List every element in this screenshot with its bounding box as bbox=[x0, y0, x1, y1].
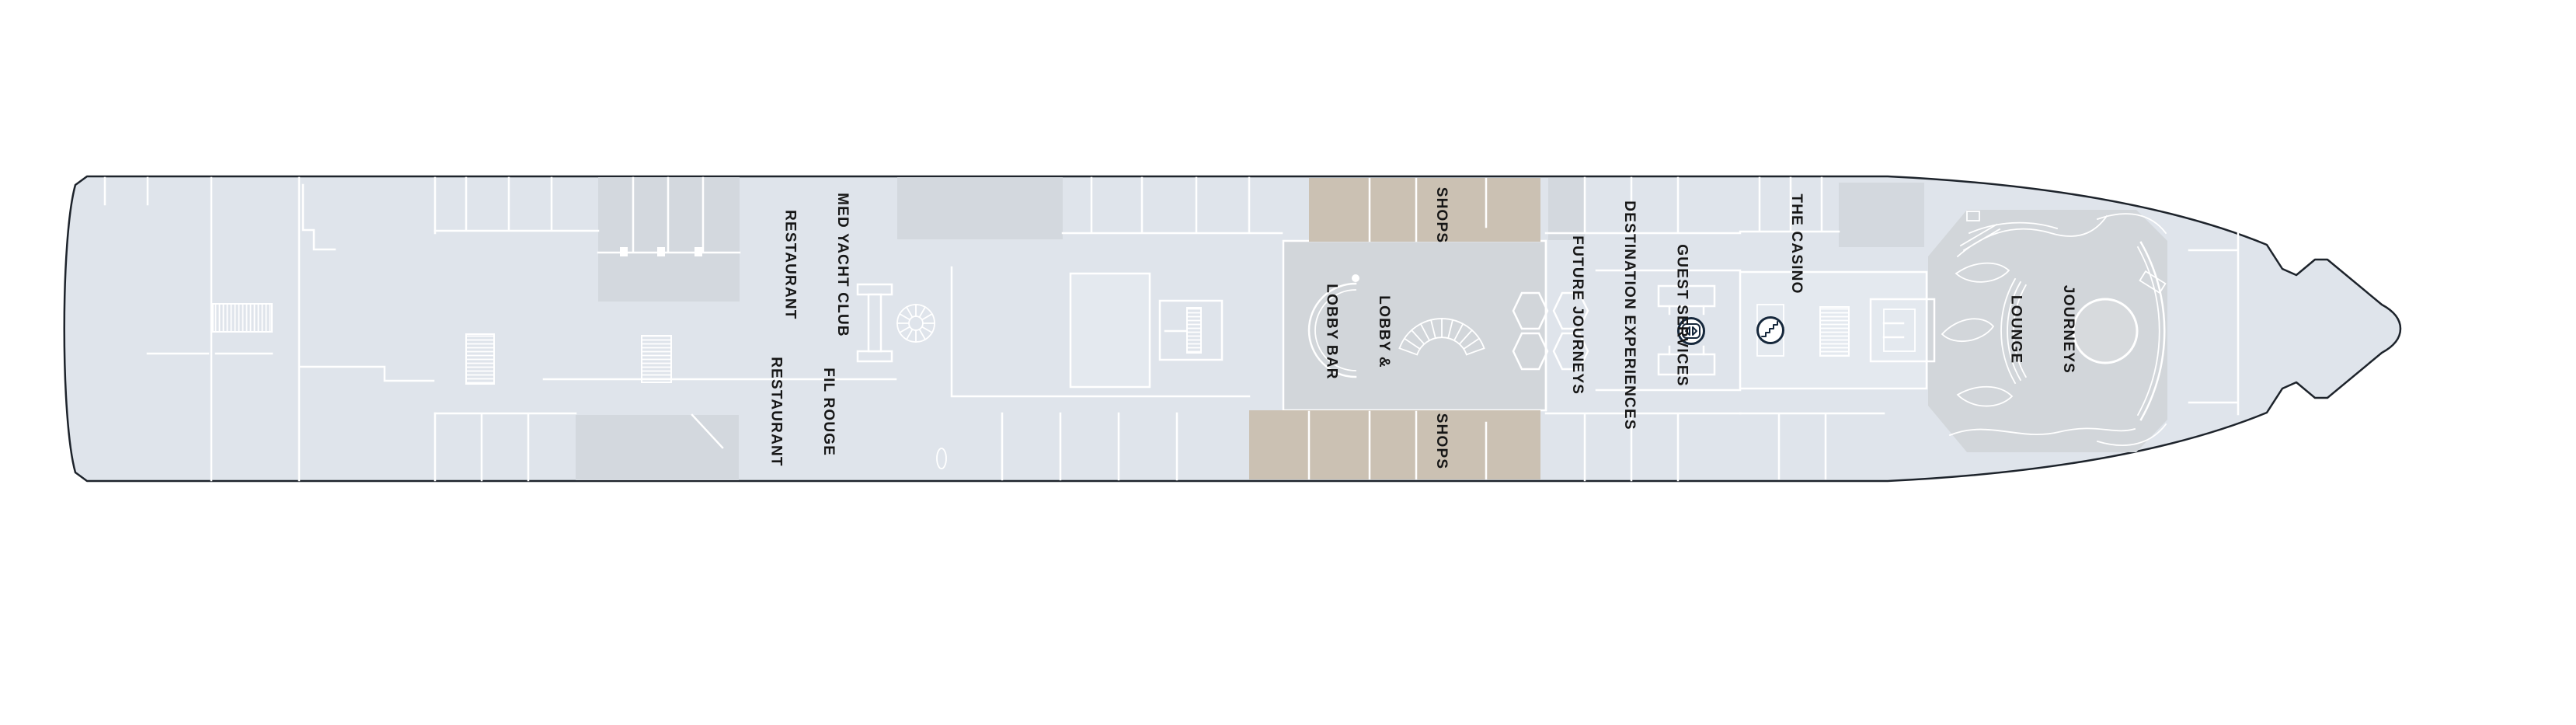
label-line: DESTINATION EXPERIENCES bbox=[1620, 200, 1638, 430]
label-line: LOUNGE bbox=[2007, 285, 2024, 374]
label-line: SHOPS bbox=[1432, 413, 1450, 470]
staircase-casino bbox=[1820, 307, 1849, 356]
shops-block-bottom bbox=[1249, 410, 1540, 479]
label-lobby-and-lobby-bar: LOBBY & LOBBY BAR bbox=[1287, 284, 1426, 379]
label-line: SHOPS bbox=[1432, 187, 1450, 244]
label-med-yacht-club-restaurant: MED YACHT CLUB RESTAURANT bbox=[746, 193, 885, 337]
room-casino-top bbox=[1839, 183, 1924, 247]
room-mid-top bbox=[897, 177, 1063, 239]
label-line: LOBBY BAR bbox=[1322, 284, 1339, 379]
label-line: RESTAURANT bbox=[767, 357, 784, 466]
staircase-fil-rouge bbox=[642, 336, 671, 382]
staircase-med-yacht bbox=[466, 334, 494, 384]
label-the-casino: THE CASINO bbox=[1753, 193, 1840, 294]
label-journeys-lounge: JOURNEYS LOUNGE bbox=[1972, 285, 2111, 374]
label-line: LOBBY & bbox=[1374, 284, 1391, 379]
label-line: FIL ROUGE bbox=[819, 357, 836, 466]
label-line: RESTAURANT bbox=[781, 193, 798, 337]
label-shops-bottom: SHOPS bbox=[1398, 413, 1485, 470]
label-guest-services: GUEST SERVICES DESTINATION EXPERIENCES F… bbox=[1533, 200, 1725, 430]
label-line: MED YACHT CLUB bbox=[833, 193, 850, 337]
staircase-stern bbox=[213, 304, 272, 332]
stairs-icon bbox=[1758, 318, 1784, 343]
room-central-hall bbox=[1070, 274, 1150, 387]
label-line: THE CASINO bbox=[1788, 193, 1805, 294]
deck-plan: MED YACHT CLUB RESTAURANT FIL ROUGE REST… bbox=[0, 0, 2576, 725]
label-line: FUTURE JOURNEYS bbox=[1568, 200, 1586, 430]
label-line: GUEST SERVICES bbox=[1673, 200, 1690, 430]
label-shops-top: SHOPS bbox=[1398, 187, 1485, 244]
label-fil-rouge-restaurant: FIL ROUGE RESTAURANT bbox=[732, 357, 871, 466]
staircase-pantry bbox=[1187, 308, 1201, 353]
room-banquet-bottom bbox=[576, 415, 739, 480]
label-line: JOURNEYS bbox=[2059, 285, 2076, 374]
